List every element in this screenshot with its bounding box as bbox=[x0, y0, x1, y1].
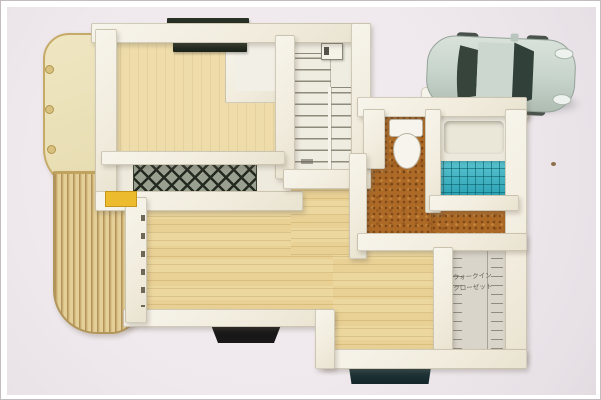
wall-room-balcony bbox=[101, 151, 285, 165]
wall-closet-left bbox=[433, 247, 453, 355]
photo-background: ウォークイン クローゼット bbox=[7, 7, 596, 395]
wall-bottom-right bbox=[321, 349, 527, 369]
closet-pencil-line bbox=[487, 249, 488, 349]
car-roof bbox=[476, 42, 515, 106]
terrace-knob bbox=[45, 105, 54, 114]
entry-step-dark bbox=[349, 367, 431, 384]
terrace-knob bbox=[45, 65, 54, 74]
stair-divider-wall bbox=[328, 87, 331, 173]
bathtub bbox=[435, 113, 513, 163]
closet-label: ウォークイン クローゼット bbox=[452, 270, 507, 295]
car-rear-window bbox=[456, 45, 478, 100]
wall-left bbox=[95, 29, 117, 201]
car-headlight bbox=[553, 94, 571, 105]
car-mirror bbox=[510, 33, 518, 41]
floor-smudge bbox=[301, 159, 313, 164]
photo-print: ウォークイン クローゼット bbox=[0, 0, 601, 400]
closet-hatch-marks bbox=[453, 249, 462, 349]
bathtub-basin bbox=[444, 121, 504, 154]
photo-speck bbox=[551, 162, 556, 166]
skylight bbox=[321, 43, 343, 60]
entry-step-black bbox=[211, 325, 281, 343]
yellow-fitting bbox=[105, 191, 137, 207]
skylight-vent bbox=[324, 47, 329, 55]
wall-bath-bottom bbox=[429, 195, 519, 211]
wall-top bbox=[91, 23, 367, 43]
door-track-marks bbox=[141, 215, 145, 307]
terrace-knob bbox=[47, 145, 56, 154]
living-room-floor bbox=[333, 251, 435, 353]
wall-bottom-left bbox=[123, 309, 333, 327]
car-headlight bbox=[555, 48, 573, 59]
wall-bottom-jog bbox=[315, 309, 335, 369]
stair-flight-left bbox=[293, 53, 331, 175]
closet-hatch-marks bbox=[491, 249, 503, 349]
